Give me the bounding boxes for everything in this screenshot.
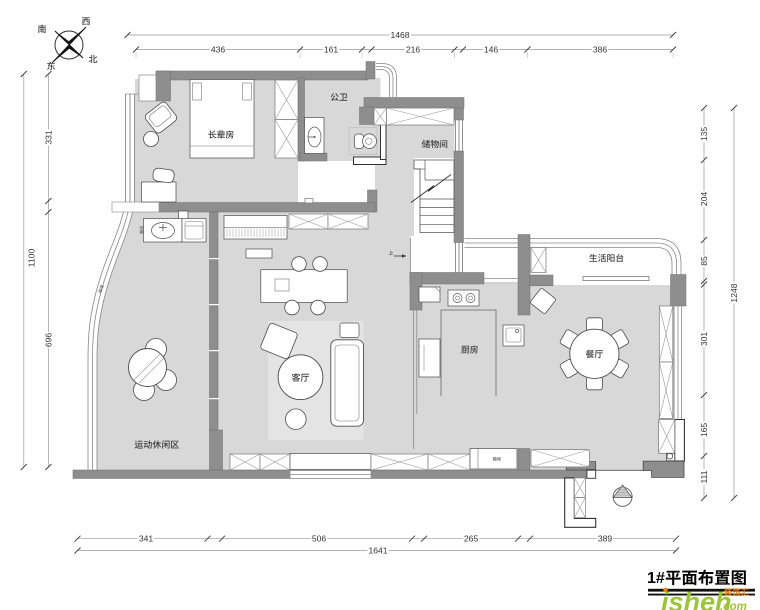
svg-text:1468: 1468 xyxy=(390,30,409,40)
svg-text:265: 265 xyxy=(464,534,479,544)
svg-text:146: 146 xyxy=(484,45,499,55)
svg-text:165: 165 xyxy=(699,423,709,438)
svg-text:1641: 1641 xyxy=(368,546,387,556)
svg-text:331: 331 xyxy=(43,130,53,145)
svg-text:161: 161 xyxy=(324,45,339,55)
svg-text:436: 436 xyxy=(211,45,226,55)
svg-text:341: 341 xyxy=(139,534,154,544)
svg-text:696: 696 xyxy=(43,333,53,348)
svg-text:135: 135 xyxy=(699,127,709,142)
svg-text:301: 301 xyxy=(699,332,709,347)
svg-text:1100: 1100 xyxy=(27,249,37,268)
svg-text:85: 85 xyxy=(699,256,709,266)
svg-text:389: 389 xyxy=(598,534,613,544)
svg-text:386: 386 xyxy=(593,45,608,55)
svg-text:1#: 1# xyxy=(647,570,665,587)
svg-text:1248: 1248 xyxy=(729,283,739,302)
svg-text:111: 111 xyxy=(699,470,709,483)
svg-text:216: 216 xyxy=(406,45,421,55)
svg-text:.com: .com xyxy=(720,601,747,610)
svg-text:204: 204 xyxy=(699,192,709,207)
svg-text:506: 506 xyxy=(312,534,327,544)
